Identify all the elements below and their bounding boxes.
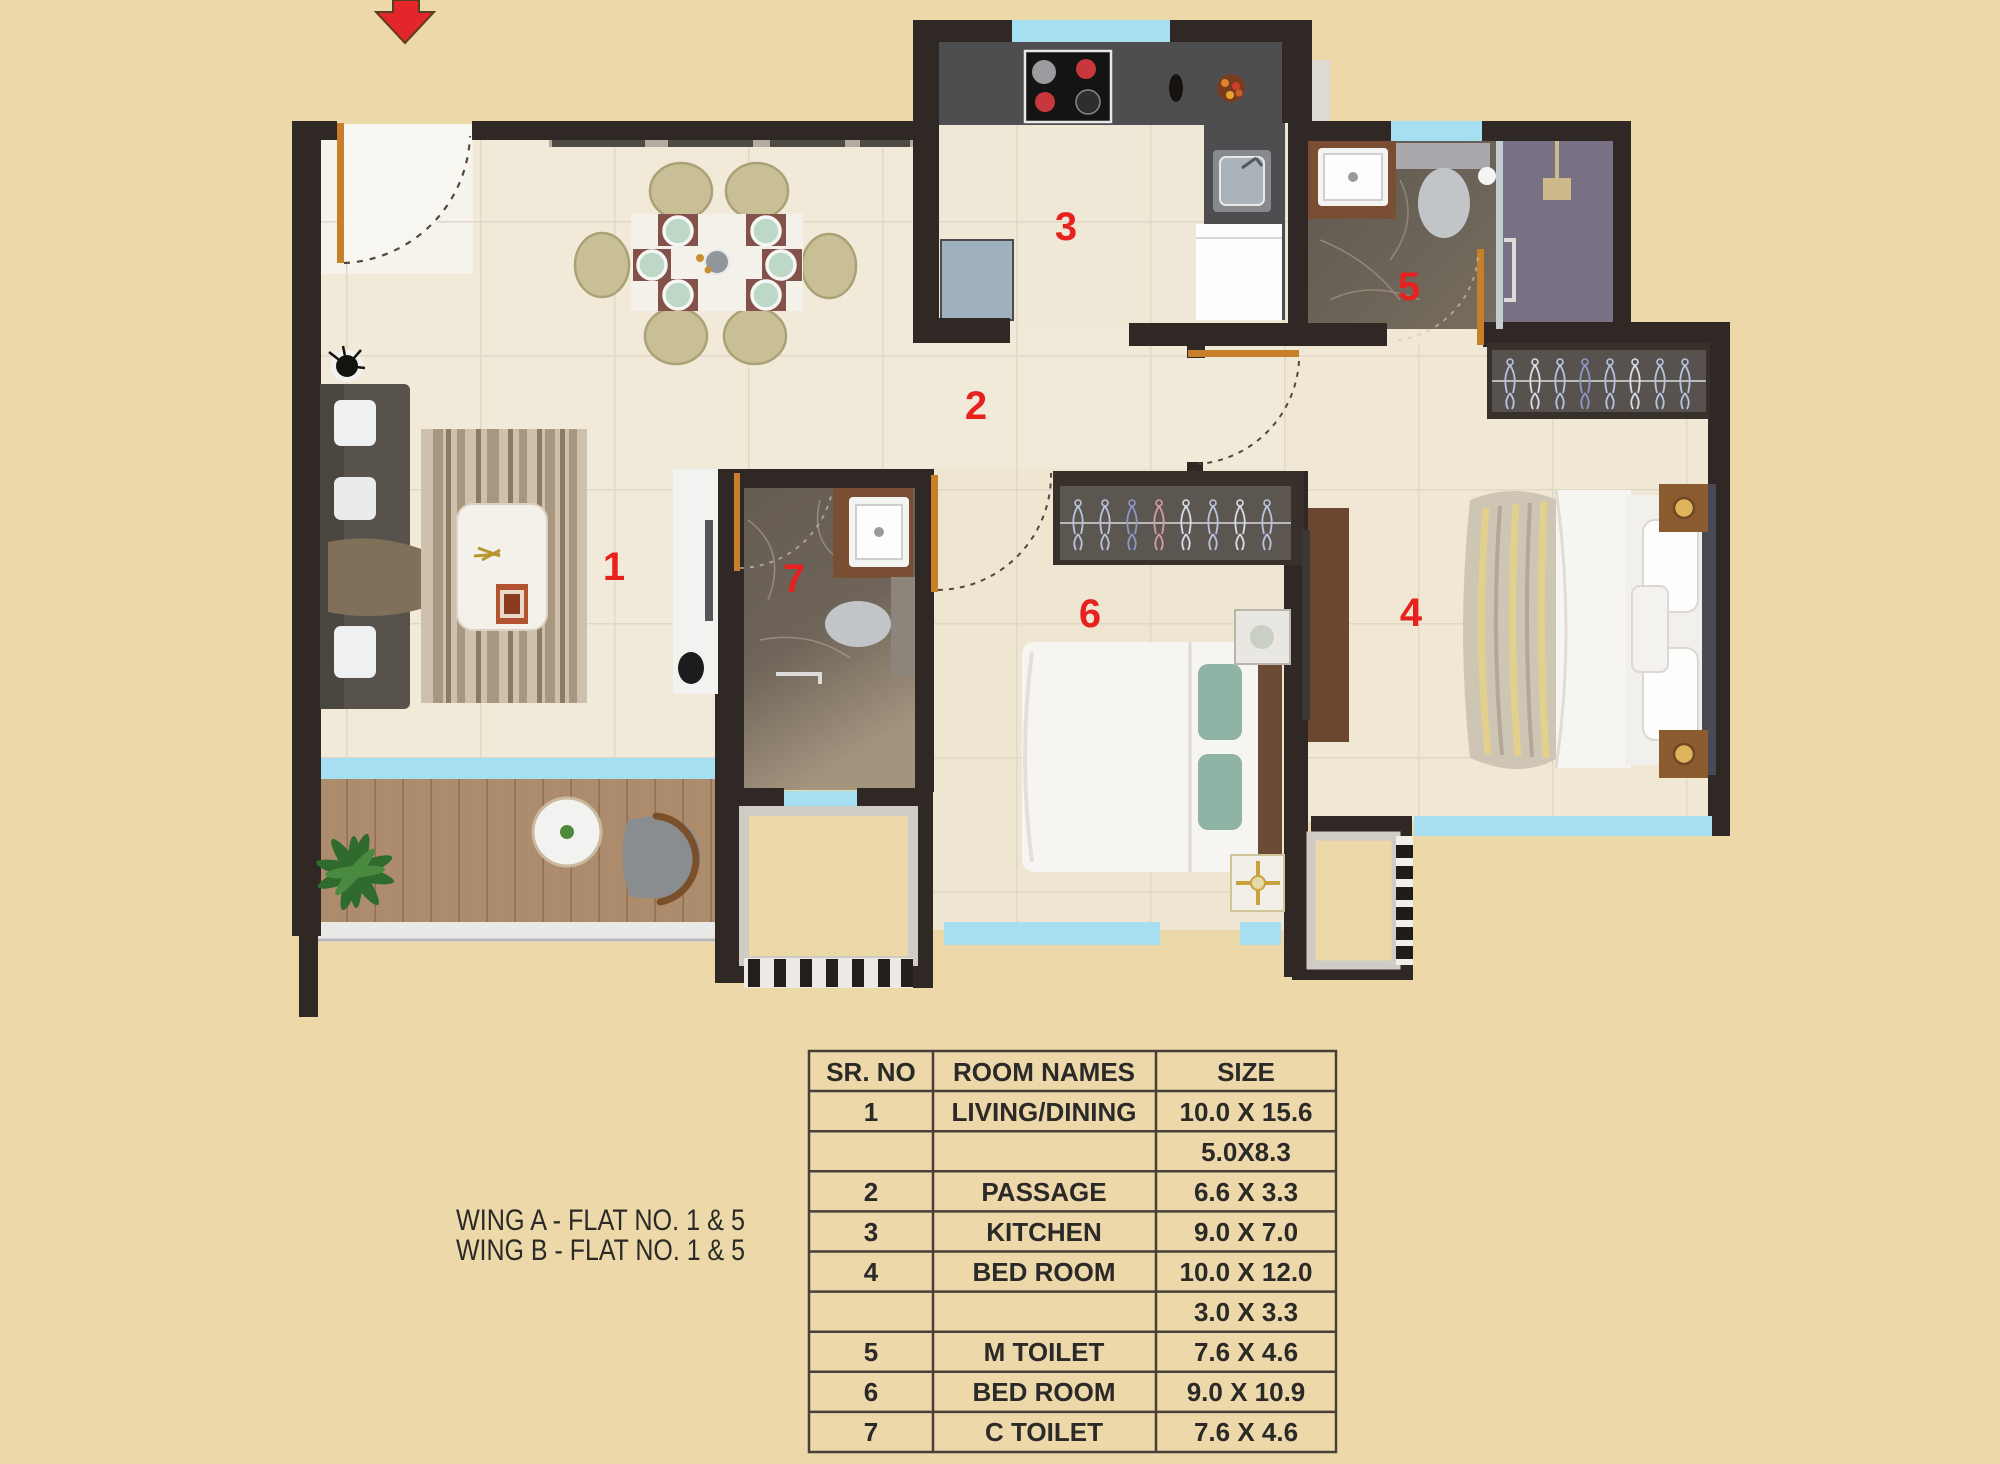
svg-text:6.6 X 3.3: 6.6 X 3.3 <box>1194 1177 1298 1207</box>
svg-text:7.6 X 4.6: 7.6 X 4.6 <box>1194 1337 1298 1367</box>
svg-text:5: 5 <box>1398 265 1420 309</box>
svg-text:4: 4 <box>864 1257 879 1287</box>
svg-text:C TOILET: C TOILET <box>985 1417 1103 1447</box>
svg-text:3: 3 <box>1055 205 1077 249</box>
svg-text:10.0 X 12.0: 10.0 X 12.0 <box>1180 1257 1313 1287</box>
svg-text:3: 3 <box>864 1217 878 1247</box>
svg-text:M TOILET: M TOILET <box>984 1337 1105 1367</box>
svg-text:PASSAGE: PASSAGE <box>981 1177 1106 1207</box>
svg-text:WING B - FLAT NO. 1 & 5: WING B - FLAT NO. 1 & 5 <box>456 1234 745 1267</box>
svg-text:3.0 X 3.3: 3.0 X 3.3 <box>1194 1297 1298 1327</box>
svg-text:2: 2 <box>864 1177 878 1207</box>
svg-text:10.0 X 15.6: 10.0 X 15.6 <box>1180 1097 1313 1127</box>
svg-text:1: 1 <box>603 545 625 589</box>
svg-text:7: 7 <box>783 557 805 601</box>
svg-text:6: 6 <box>1079 592 1101 636</box>
svg-text:SR. NO: SR. NO <box>826 1057 916 1087</box>
svg-text:2: 2 <box>965 384 987 428</box>
svg-text:1: 1 <box>864 1097 878 1127</box>
svg-text:9.0 X 10.9: 9.0 X 10.9 <box>1187 1377 1306 1407</box>
svg-text:ROOM NAMES: ROOM NAMES <box>953 1057 1135 1087</box>
svg-text:BED ROOM: BED ROOM <box>973 1257 1116 1287</box>
svg-text:5: 5 <box>864 1337 878 1367</box>
svg-text:6: 6 <box>864 1377 878 1407</box>
svg-text:BED ROOM: BED ROOM <box>973 1377 1116 1407</box>
svg-text:7.6 X 4.6: 7.6 X 4.6 <box>1194 1417 1298 1447</box>
svg-text:SIZE: SIZE <box>1217 1057 1275 1087</box>
svg-text:5.0X8.3: 5.0X8.3 <box>1201 1137 1291 1167</box>
svg-text:7: 7 <box>864 1417 878 1447</box>
svg-text:WING A - FLAT NO. 1 & 5: WING A - FLAT NO. 1 & 5 <box>456 1204 745 1237</box>
svg-text:LIVING/DINING: LIVING/DINING <box>952 1097 1137 1127</box>
svg-text:4: 4 <box>1400 591 1423 635</box>
svg-text:KITCHEN: KITCHEN <box>986 1217 1102 1247</box>
svg-text:9.0 X 7.0: 9.0 X 7.0 <box>1194 1217 1298 1247</box>
